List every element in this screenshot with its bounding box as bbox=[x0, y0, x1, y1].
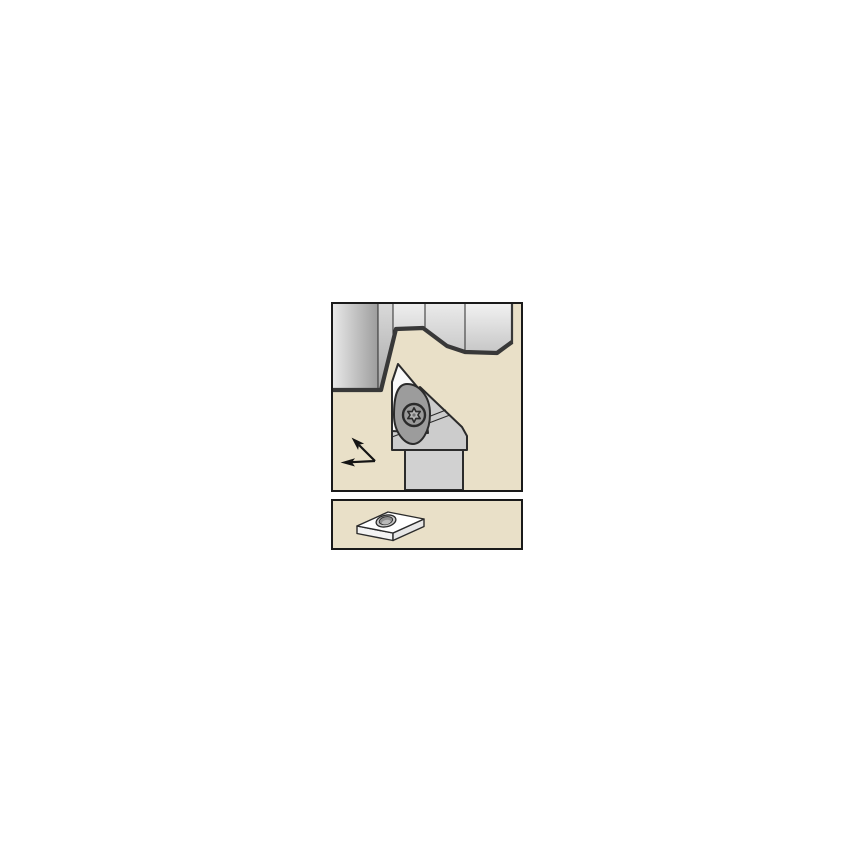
workpiece-face-middle bbox=[393, 304, 425, 341]
application-illustration bbox=[333, 304, 521, 490]
feed-direction-arrows-icon bbox=[342, 439, 375, 466]
screw-center bbox=[412, 413, 415, 416]
toolholder-shank bbox=[405, 450, 463, 490]
workpiece-face-left bbox=[333, 304, 378, 390]
catalog-page bbox=[0, 0, 854, 854]
application-illustration-panel bbox=[331, 302, 523, 492]
insert-illustration-panel bbox=[331, 499, 523, 550]
arrow-shafts bbox=[351, 445, 375, 462]
torx-screw-icon bbox=[403, 404, 425, 426]
insert-isometric-drawing bbox=[333, 501, 521, 548]
workpiece bbox=[333, 304, 512, 390]
diamond-insert bbox=[357, 512, 424, 541]
